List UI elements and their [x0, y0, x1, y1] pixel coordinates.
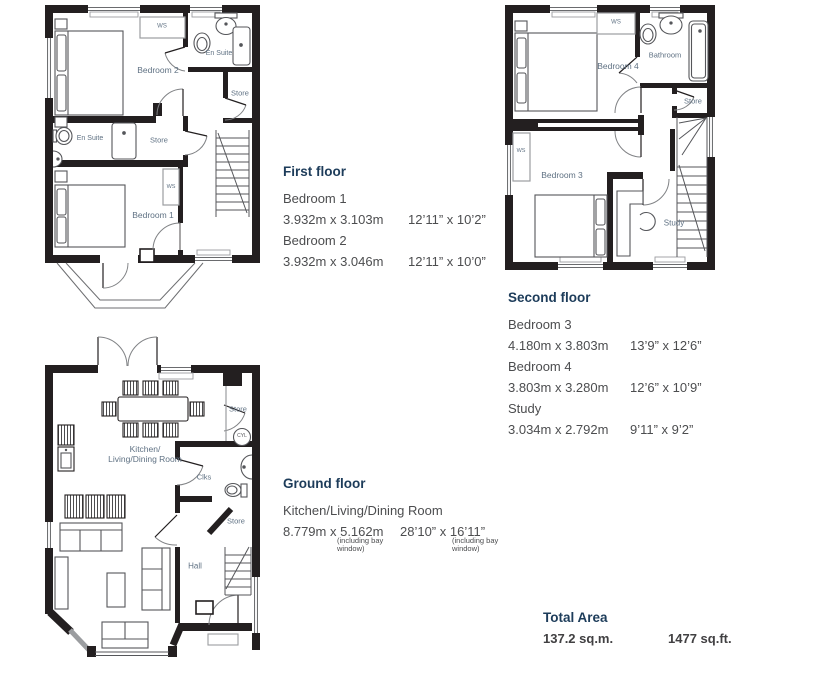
imperial-dimension: 12’11” x 10’2” [408, 209, 486, 230]
room-label-bathroom: Bathroom [649, 52, 682, 61]
sofa-icon [60, 523, 122, 551]
metric-dimension: 3.034m x 2.792m [508, 422, 608, 437]
imperial-dimension: 12’6” x 10’9” [630, 377, 702, 398]
wardrobe-boxes [140, 17, 185, 205]
dining-table-icon [102, 381, 204, 437]
metric-dimension: 3.932m x 3.103m [283, 212, 383, 227]
room-name: Bedroom 4 [508, 356, 758, 377]
room-dimensions: 8.779m x 5.162m (including bay window) 2… [283, 521, 533, 542]
room-label-store-top: Store [231, 90, 249, 99]
room-label-study: Study [664, 218, 684, 227]
room-label-ensuite-top: En Suite [205, 50, 233, 58]
desk-chair-icon [640, 213, 655, 231]
section-title: First floor [283, 164, 533, 179]
room-dimensions: 3.034m x 2.792m 9’11” x 9’2” [508, 419, 758, 440]
room-label-ws-top: WS [611, 20, 621, 27]
first-floor-plan: Bedroom 2 WS En Suite Store En Suite Sto… [45, 5, 265, 317]
total-area-values: 137.2 sq.m. 1477 sq.ft. [543, 628, 793, 649]
room-name: Study [508, 398, 758, 419]
room-dimensions: 3.803m x 3.280m 12’6” x 10’9” [508, 377, 758, 398]
cloakroom-fixtures [225, 455, 252, 497]
room-label-store-mid: Store [150, 137, 168, 146]
first-floor-specs: First floor Bedroom 1 3.932m x 3.103m 12… [283, 164, 533, 272]
total-imperial: 1477 sq.ft. [668, 628, 732, 649]
bedroom4-bed-icon [515, 21, 597, 111]
room-dimensions: 3.932m x 3.046m 12’11” x 10’0” [283, 251, 533, 272]
room-label-store-under-stairs: Store [227, 518, 245, 527]
bay-roof-outline [57, 263, 203, 308]
threshold [196, 601, 213, 614]
bedroom2-bed-icon [55, 19, 123, 127]
room-label-store: Store [684, 98, 702, 107]
ground-floor-specs: Ground floor Kitchen/Living/Dining Room … [283, 476, 533, 558]
room-name: Bedroom 2 [283, 230, 533, 251]
metric-dimension: 3.803m x 3.280m [508, 380, 608, 395]
section-title: Ground floor [283, 476, 533, 491]
room-name: Bedroom 1 [283, 188, 533, 209]
room-label-ensuite-mid: En Suite [76, 135, 104, 143]
section-title: Second floor [508, 290, 758, 305]
room-label-ws-top: WS [157, 24, 167, 31]
stairs-icon [225, 547, 251, 595]
second-floor-plan: Bedroom 4 WS Bathroom Store WS Bedroom 3… [505, 5, 720, 275]
room-label-ws-left: WS [517, 148, 526, 154]
room-label-bedroom-4: Bedroom 4 [597, 62, 639, 72]
room-dimensions: 3.932m x 3.103m 12’11” x 10’2” [283, 209, 533, 230]
room-label-bedroom-1: Bedroom 1 [132, 211, 174, 221]
coffee-table-icon [107, 573, 125, 607]
floorplan-sheet: Bedroom 2 WS En Suite Store En Suite Sto… [0, 0, 825, 698]
imperial-dimension: 28’10” x 16’11” (including bay window) [400, 521, 485, 542]
imperial-dimension: 12’11” x 10’0” [408, 251, 486, 272]
side-table-icon [55, 557, 68, 609]
room-label-hall: Hall [188, 561, 202, 570]
bedroom1-bed-icon [55, 171, 125, 247]
total-area: Total Area 137.2 sq.m. 1477 sq.ft. [543, 610, 793, 649]
metric-dimension: 4.180m x 3.803m [508, 338, 608, 353]
bedroom3-bed-icon [535, 195, 607, 257]
stairs-icon [216, 130, 249, 217]
room-label-clks: Clks [197, 474, 212, 483]
room-label-bedroom-2: Bedroom 2 [137, 66, 179, 76]
sofa-icon [142, 548, 170, 610]
stairs-icon [677, 117, 707, 257]
room-name: Bedroom 3 [508, 314, 758, 335]
room-label-store-top: Store [229, 406, 247, 415]
total-area-title: Total Area [543, 610, 793, 625]
second-floor-specs: Second floor Bedroom 3 4.180m x 3.803m 1… [508, 290, 758, 440]
room-label-kitchen: Kitchen/ Living/Dining Room [85, 445, 205, 465]
french-doors-icon [98, 337, 157, 373]
bathroom-fixtures [640, 13, 708, 81]
room-name: Kitchen/Living/Dining Room [283, 500, 533, 521]
metric-note: (including bay window) [337, 537, 387, 553]
balcony-door-icon [100, 249, 154, 288]
imperial-dimension: 9’11” x 9’2” [630, 419, 693, 440]
room-dimensions: 4.180m x 3.803m 13’9” x 12’6” [508, 335, 758, 356]
imperial-note: (including bay window) [452, 537, 502, 553]
room-label-bedroom-3: Bedroom 3 [541, 171, 583, 181]
ground-floor-plan-drawing [45, 333, 267, 678]
entry-step [208, 634, 238, 645]
total-metric: 137.2 sq.m. [543, 631, 613, 646]
second-floor-plan-drawing [505, 5, 720, 275]
imperial-dimension: 13’9” x 12’6” [630, 335, 702, 356]
study-desk-icon [617, 191, 655, 256]
kitchen-units [58, 425, 125, 518]
metric-dimension: 3.932m x 3.046m [283, 254, 383, 269]
room-label-ws-mid: WS [167, 184, 176, 190]
loveseat-icon [102, 622, 148, 648]
shower-icon [112, 123, 136, 159]
ground-floor-plan: Kitchen/ Living/Dining Room Store CYL Cl… [45, 333, 267, 678]
label-cyl: CYL [237, 434, 247, 440]
